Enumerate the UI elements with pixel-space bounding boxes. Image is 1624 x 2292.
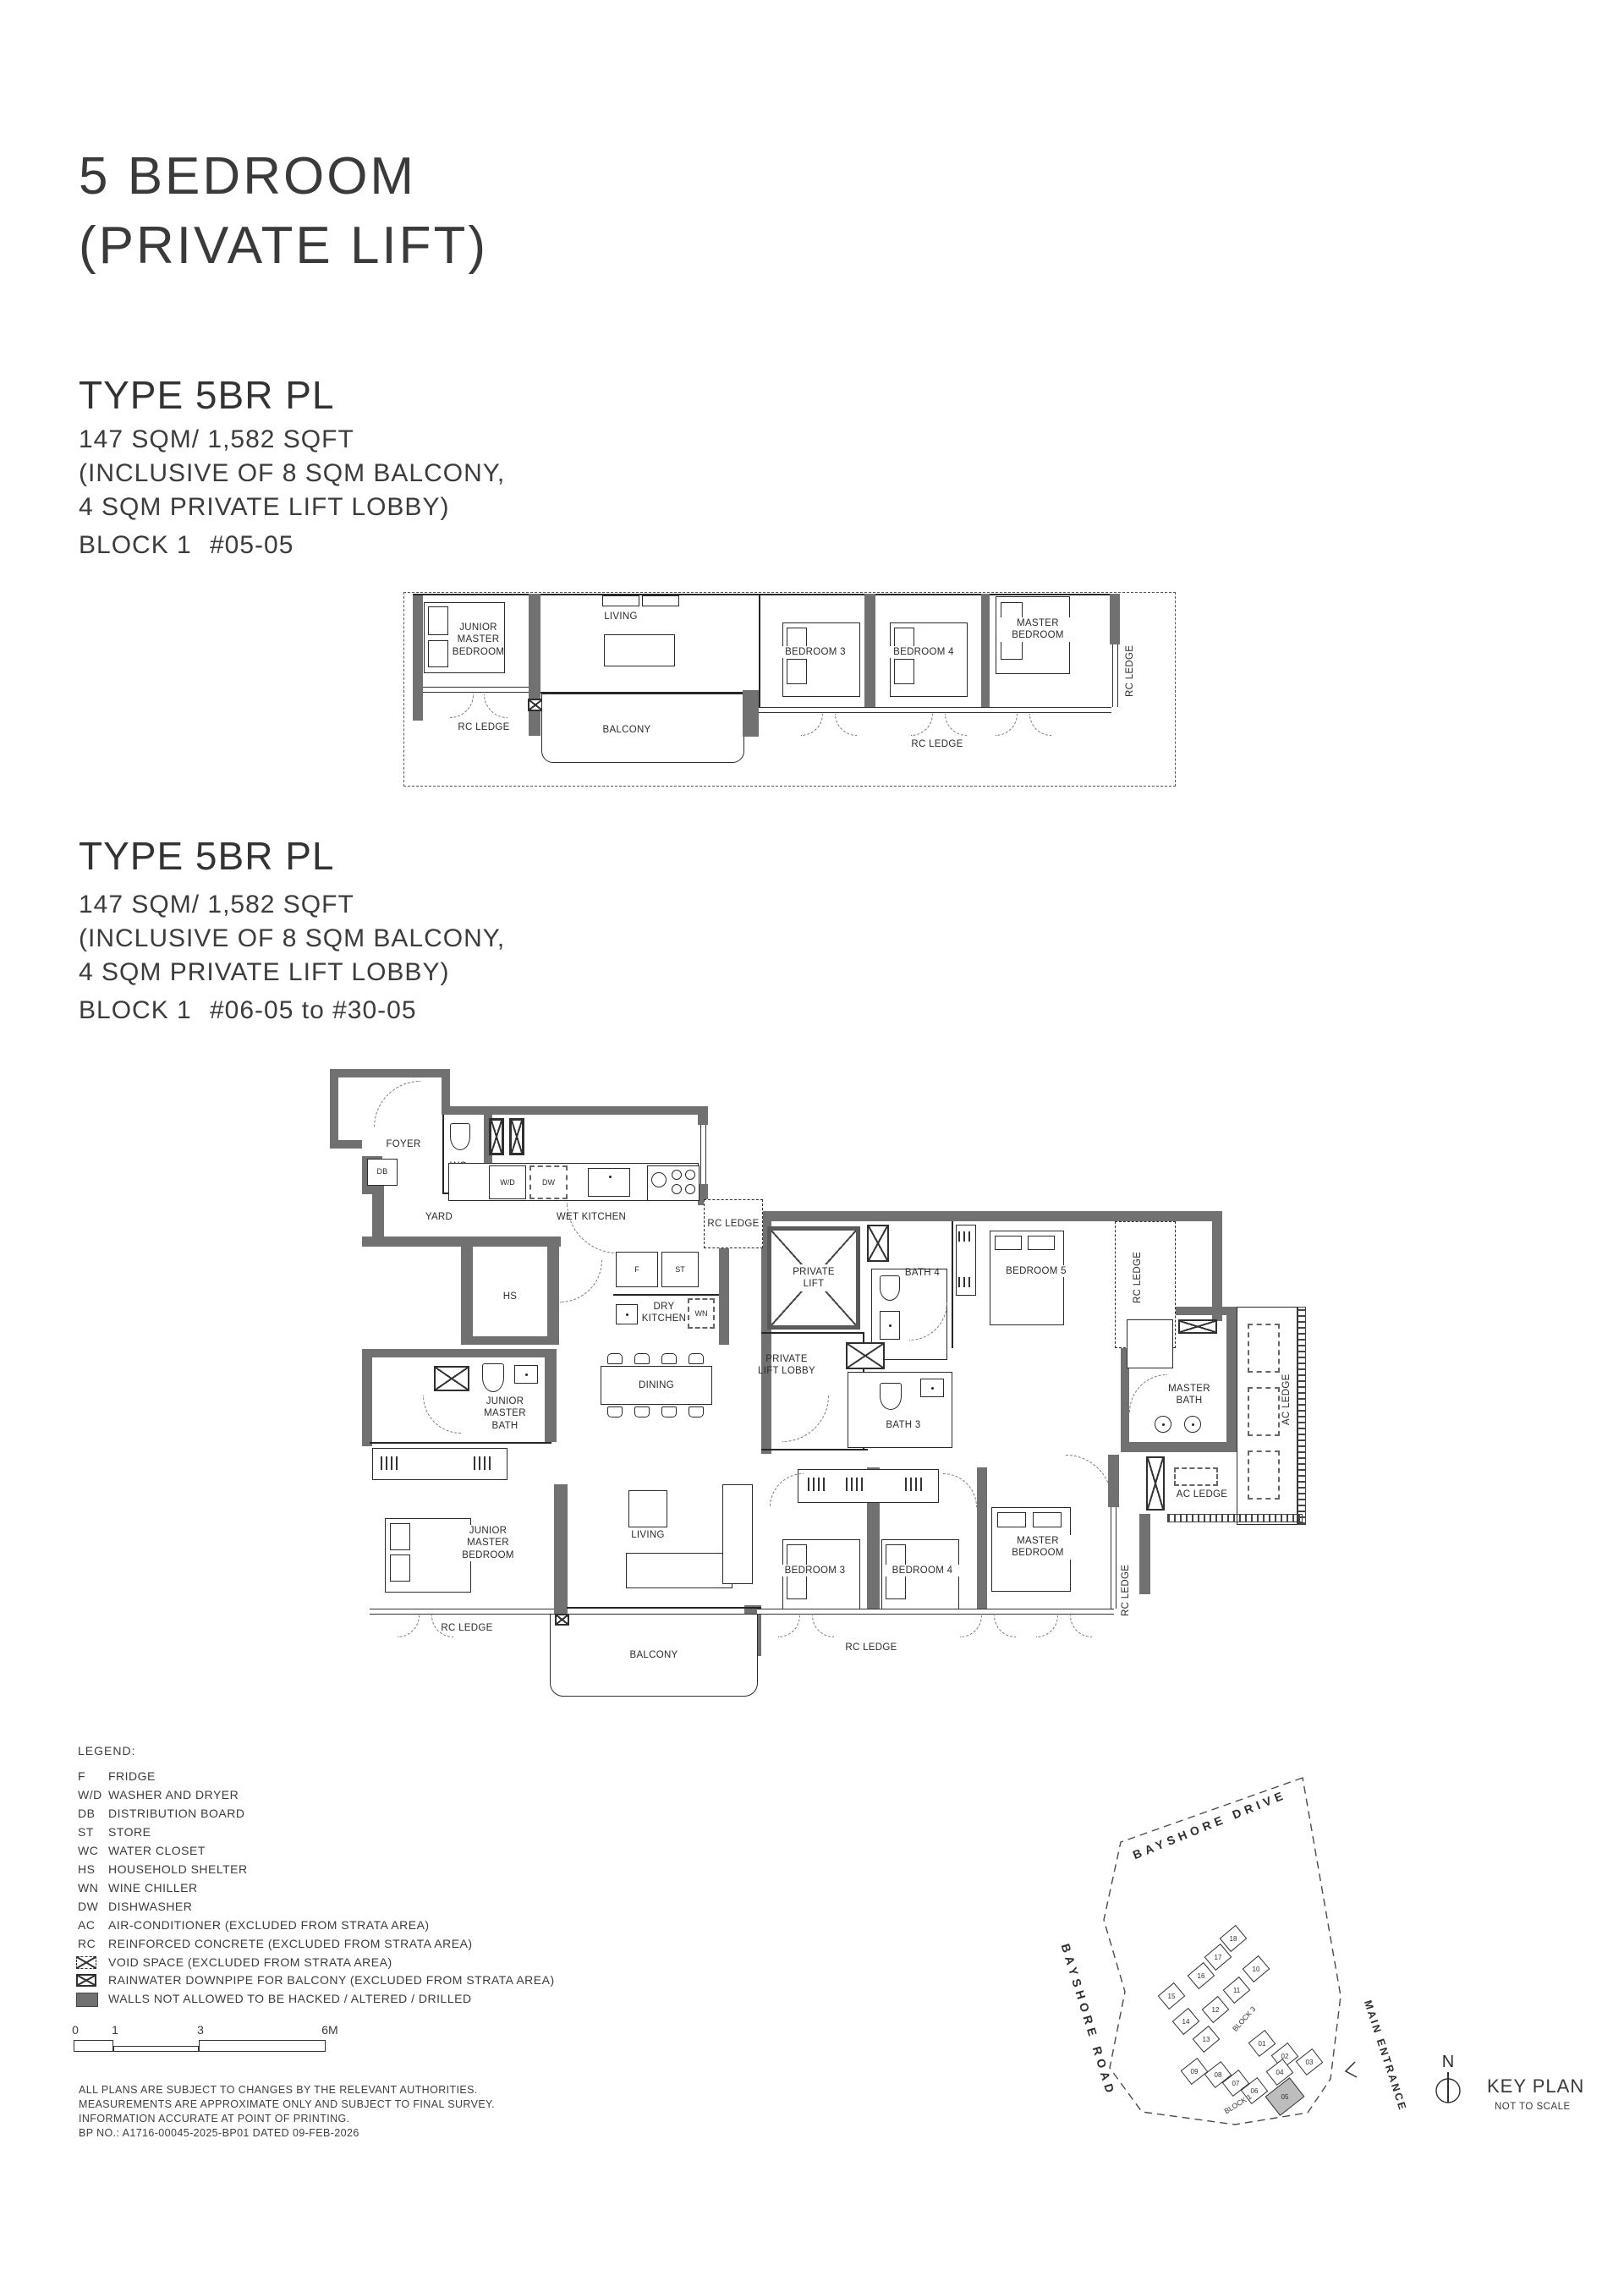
label-st: ST [675, 1265, 685, 1274]
sofa [626, 1553, 732, 1588]
type2-block: BLOCK 1 [79, 996, 192, 1025]
legend-desc: WATER CLOSET [108, 1844, 206, 1857]
kitchen-sink [588, 1168, 630, 1197]
unit-footprint: 12 [1202, 1997, 1228, 2023]
legend-desc: DISHWASHER [108, 1900, 192, 1913]
wall-segment [698, 1106, 708, 1125]
basin-dot [525, 1374, 528, 1376]
wall-line [442, 1115, 444, 1194]
hob-burner [672, 1170, 682, 1180]
pillow [894, 659, 914, 684]
scale-tick-6m: 6M [321, 2023, 337, 2037]
type2-inclusive-2: 4 SQM PRIVATE LIFT LOBBY) [79, 958, 449, 987]
tap-dot [609, 1176, 612, 1178]
road-label-bayshore-road: BAYSHORE ROAD [1059, 1942, 1118, 2098]
glass-line [567, 1607, 761, 1609]
scale-tick-0: 0 [72, 2023, 79, 2037]
bed-bedroom5 [990, 1231, 1064, 1325]
wall-segment [554, 1484, 568, 1624]
wall-line [761, 1332, 864, 1334]
legend-desc: AIR-CONDITIONER (EXCLUDED FROM STRATA AR… [108, 1918, 430, 1932]
wall-segment [529, 594, 540, 736]
ledge-label-rc-bottom-mid: RC LEDGE [829, 1642, 913, 1653]
unit-footprint: 16 [1188, 1963, 1214, 1989]
dining-table: DINING [601, 1366, 712, 1405]
room-label-yard: YARD [408, 1211, 470, 1223]
lift-void-icon [489, 1118, 504, 1155]
unit-footprint: 15 [1158, 1983, 1184, 2010]
legend-abbr: WN [78, 1881, 98, 1894]
wall-segment [362, 1349, 557, 1357]
disclaimer-line: BP NO.: A1716-00045-2025-BP01 DATED 09-F… [79, 2127, 359, 2139]
wall-segment [1226, 1307, 1237, 1452]
chair [634, 1353, 650, 1364]
scale-segment [199, 2040, 326, 2052]
room-label-junior-master-bath: JUNIOR MASTER BATH [467, 1395, 543, 1432]
lift-void-icon [509, 1118, 524, 1155]
type1-inclusive-1: (INCLUSIVE OF 8 SQM BALCONY, [79, 459, 505, 488]
ledge-label-rc-right: RC LEDGE [1132, 1231, 1145, 1324]
room-label-foyer: FOYER [370, 1138, 437, 1150]
counter-line [613, 1294, 719, 1296]
hob-burner [672, 1184, 682, 1194]
block3-cluster: 18 17 16 10 11 15 12 14 13 BLOCK 3 [1158, 1926, 1269, 2053]
legend-desc: HOUSEHOLD SHELTER [108, 1862, 248, 1876]
unit-number: 12 [1212, 2006, 1220, 2014]
room-label-dining: DINING [639, 1379, 674, 1391]
dishwasher-box: DW [529, 1165, 568, 1199]
chair [689, 1353, 704, 1364]
room-label-bedroom3: BEDROOM 3 [777, 646, 853, 658]
toilet [880, 1383, 902, 1410]
keyplan-title: KEY PLAN [1487, 2075, 1584, 2097]
door-arc [423, 1395, 461, 1434]
scale-segment [113, 2046, 199, 2052]
scale-tick-1: 1 [112, 2023, 118, 2037]
legend-desc: WALLS NOT ALLOWED TO BE HACKED / ALTERED… [108, 1992, 472, 2005]
type1-area: 147 SQM/ 1,582 SQFT [79, 425, 354, 454]
room-label-living: LIVING [583, 611, 659, 622]
label-wn: WN [695, 1309, 708, 1318]
door-arc [1066, 1455, 1112, 1501]
legend-abbr: F [78, 1769, 85, 1783]
wall-segment [461, 1336, 559, 1345]
legend-desc: WASHER AND DRYER [108, 1788, 239, 1801]
door-arc [560, 1260, 602, 1302]
unit-number: 16 [1198, 1972, 1205, 1980]
unit-number: 10 [1253, 1966, 1260, 1973]
chair [607, 1406, 623, 1417]
room-label-bedroom5: BEDROOM 5 [994, 1265, 1078, 1277]
hanger-ticks [808, 1478, 828, 1491]
wall-swatch-icon [76, 1993, 98, 2007]
wall-segment [719, 1245, 729, 1345]
hanger-ticks [905, 1478, 925, 1491]
ledge-label-rc-top: RC LEDGE [704, 1218, 763, 1230]
shower [1127, 1319, 1173, 1368]
basin-dot [1162, 1423, 1165, 1426]
wall-line [952, 1221, 953, 1348]
cabinet [602, 595, 639, 606]
unit-footprint: 09 [1181, 2059, 1207, 2085]
legend-abbr: HS [78, 1862, 95, 1876]
type1-heading: TYPE 5BR PL [79, 372, 334, 418]
room-label-private-lift-lobby: PRIVATE LIFT LOBBY [740, 1353, 833, 1378]
basin-dot [1192, 1423, 1194, 1426]
unit-number: 01 [1259, 2040, 1266, 2048]
door-arc [1129, 1374, 1167, 1412]
chair [689, 1406, 704, 1417]
label-db: DB [367, 1167, 398, 1176]
wall-segment [362, 1236, 561, 1247]
cabinet [642, 595, 679, 606]
unit-number: 17 [1215, 1954, 1222, 1961]
type2-unit: #06-05 to #30-05 [210, 996, 417, 1025]
scale-tick-3: 3 [197, 2023, 204, 2037]
chair [661, 1353, 677, 1364]
wall-segment [1212, 1211, 1222, 1321]
wall-line [370, 1442, 551, 1444]
basin [514, 1365, 538, 1384]
private-lift: PRIVATE LIFT [767, 1226, 860, 1330]
label-dw: DW [542, 1178, 555, 1187]
void-space-icon [867, 1225, 889, 1262]
room-label-master-bedroom: MASTER BEDROOM [1000, 1535, 1076, 1560]
wall-segment [461, 1247, 473, 1341]
hanger-ticks [381, 1456, 401, 1470]
basin [920, 1379, 944, 1397]
room-label-master-bedroom: MASTER BEDROOM [1000, 617, 1076, 642]
pillow [390, 1523, 410, 1550]
wall-segment [743, 690, 759, 737]
keyplan-subtitle: NOT TO SCALE [1495, 2102, 1571, 2112]
washer-dryer-box: W/D [489, 1165, 526, 1199]
door-arc [994, 1615, 1016, 1637]
store-box: ST [661, 1252, 699, 1287]
type2-inclusive-1: (INCLUSIVE OF 8 SQM BALCONY, [79, 924, 505, 953]
wall-segment [413, 594, 423, 721]
wall-segment [977, 1467, 987, 1613]
basin-dot [889, 1324, 892, 1327]
ledge-label-rc-bottom: RC LEDGE [895, 738, 979, 750]
pillow [1033, 1512, 1062, 1527]
chair [661, 1406, 677, 1417]
entrance-arrow-icon [1346, 2062, 1357, 2077]
unit-number: 11 [1233, 1987, 1241, 1994]
door-arc [782, 1395, 829, 1442]
floor-plan-unit-06-05-to-30-05: FOYER DB WC YARD W/D DW WET KITCHEN RC L… [321, 1057, 1328, 1734]
legend-desc: FRIDGE [108, 1769, 156, 1783]
wall-segment [1121, 1442, 1235, 1452]
unit-footprint: 01 [1248, 2031, 1275, 2057]
ledge-label-rc-right: RC LEDGE [1124, 631, 1138, 711]
pillow [997, 1512, 1026, 1527]
wall-line [761, 1449, 868, 1450]
room-label-bath4: BATH 4 [886, 1267, 958, 1279]
pillow [787, 659, 807, 684]
page-title-line1: 5 BEDROOM [79, 142, 488, 211]
legend-abbr: DW [78, 1900, 98, 1913]
toilet [880, 1275, 900, 1301]
void-space-icon [846, 1342, 885, 1369]
wall-segment [330, 1069, 444, 1077]
wall-segment [545, 1349, 557, 1442]
void-space-icon [1178, 1319, 1217, 1334]
wall-segment [330, 1140, 362, 1149]
toilet [450, 1123, 470, 1150]
room-label-bedroom4: BEDROOM 4 [882, 1565, 963, 1576]
room-label-bath3: BATH 3 [870, 1419, 937, 1431]
room-label-bedroom3: BEDROOM 3 [775, 1565, 855, 1576]
wall-line [413, 594, 1120, 595]
unit-number: 03 [1306, 2059, 1314, 2066]
rainwater-downpipe-icon [76, 1974, 96, 1987]
sofa [604, 634, 675, 666]
legend-abbr: DB [78, 1807, 95, 1820]
pillow [995, 1236, 1022, 1250]
hob-burner [651, 1172, 667, 1187]
unit-number: 15 [1168, 1993, 1176, 2000]
unit-number: 07 [1232, 2080, 1240, 2087]
tap-dot [626, 1313, 628, 1316]
unit-footprint: 14 [1172, 2009, 1199, 2035]
unit-number: 13 [1203, 2036, 1210, 2043]
door-arc [943, 1473, 977, 1507]
window-band [757, 1609, 1114, 1615]
room-label-junior-master-bedroom: JUNIOR MASTER BEDROOM [450, 1525, 526, 1561]
door-arc [374, 1081, 420, 1127]
scale-segment [74, 2040, 113, 2052]
window-band [1112, 644, 1118, 707]
wall-segment [761, 1211, 1222, 1221]
road-label-bayshore-drive: BAYSHORE DRIVE [1131, 1787, 1289, 1862]
void-space-icon [434, 1366, 469, 1391]
door-arc [567, 1203, 617, 1253]
room-label-hs: HS [491, 1291, 529, 1302]
sofa [722, 1484, 753, 1584]
wall-segment [362, 1349, 372, 1446]
north-label: N [1442, 2053, 1454, 2071]
ledge-label-rc-left: RC LEDGE [442, 721, 526, 733]
pillow [886, 1574, 906, 1599]
legend-desc: DISTRIBUTION BOARD [108, 1807, 244, 1820]
legend-abbr: RC [78, 1937, 96, 1950]
type2-heading: TYPE 5BR PL [79, 833, 334, 879]
unit-number: 06 [1251, 2087, 1259, 2095]
legend-desc: WINE CHILLER [108, 1881, 198, 1894]
wall-segment [1110, 594, 1120, 644]
ac-unit-dashed [1248, 1387, 1280, 1436]
label-f: F [634, 1265, 639, 1274]
void-space-icon [1146, 1456, 1165, 1511]
ledge-label-ac-right: AC LEDGE [1281, 1362, 1294, 1438]
legend-desc: STORE [108, 1825, 151, 1839]
ledge-label-rc-bottom-left: RC LEDGE [425, 1622, 509, 1634]
wall-line [759, 594, 760, 712]
unit-number: 04 [1276, 2069, 1284, 2076]
floorplan-page: 5 BEDROOM (PRIVATE LIFT) TYPE 5BR PL 147… [0, 0, 1624, 2292]
legend-title: LEGEND: [78, 1744, 135, 1757]
unit-footprint: 17 [1204, 1944, 1231, 1971]
pillow [390, 1555, 410, 1582]
door-arc [812, 1615, 834, 1637]
hanger-ticks [846, 1478, 866, 1491]
wall-segment [1139, 1514, 1150, 1594]
coffee-table [628, 1490, 667, 1527]
disclaimer-line: MEASUREMENTS ARE APPROXIMATE ONLY AND SU… [79, 2098, 495, 2110]
chair [607, 1353, 623, 1364]
legend-desc: VOID SPACE (EXCLUDED FROM STRATA AREA) [108, 1955, 392, 1969]
toilet [482, 1363, 504, 1392]
legend-abbr: ST [78, 1825, 94, 1839]
legend-desc: RAINWATER DOWNPIPE FOR BALCONY (EXCLUDED… [108, 1973, 555, 1987]
type1-block: BLOCK 1 [79, 531, 192, 560]
legend-abbr: AC [78, 1918, 95, 1932]
hanger-ticks [958, 1277, 974, 1287]
window-band [700, 1125, 706, 1184]
hanger-ticks [474, 1456, 494, 1470]
label-wd: W/D [500, 1178, 515, 1187]
ledge-label-rc-bottom-right: RC LEDGE [1120, 1544, 1133, 1637]
page-title: 5 BEDROOM (PRIVATE LIFT) [79, 142, 488, 281]
door-arc [1070, 1615, 1092, 1637]
ac-unit-dashed [1174, 1467, 1218, 1486]
hob-burner [685, 1170, 695, 1180]
unit-footprint: 18 [1220, 1926, 1246, 1952]
disclaimer-line: ALL PLANS ARE SUBJECT TO CHANGES BY THE … [79, 2084, 478, 2096]
ledge-label-ac-bottom: AC LEDGE [1160, 1489, 1244, 1500]
hatch-strip [1298, 1307, 1306, 1525]
door-arc [960, 1615, 982, 1637]
ac-unit-dashed [1248, 1324, 1280, 1373]
wall-segment [442, 1106, 708, 1115]
wall-segment [864, 594, 875, 712]
unit-footprint: 10 [1243, 1956, 1269, 1982]
legend-desc: REINFORCED CONCRETE (EXCLUDED FROM STRAT… [108, 1937, 473, 1950]
window-band [423, 687, 529, 693]
hob-burner [685, 1184, 695, 1194]
north-indicator: N [1436, 2053, 1460, 2103]
unit-footprint-highlighted: 05 [1265, 2078, 1304, 2115]
unit-number: 14 [1182, 2018, 1190, 2026]
wall-segment [981, 594, 990, 712]
bed-bedroom3 [782, 622, 860, 697]
void-space-icon [76, 1956, 96, 1969]
key-plan: BAYSHORE DRIVE BAYSHORE ROAD MAIN ENTRAN… [1040, 1742, 1616, 2131]
unit-footprint: 03 [1296, 2049, 1322, 2075]
unit-footprint: 13 [1193, 2026, 1219, 2053]
block1-label: BLOCK 1 [1223, 2092, 1254, 2116]
unit-number: 09 [1191, 2068, 1199, 2075]
unit-number: 08 [1215, 2071, 1222, 2079]
pillow [1028, 1236, 1055, 1250]
door-arc [398, 1615, 420, 1637]
hatch-strip [1167, 1514, 1303, 1522]
room-label-balcony: BALCONY [589, 724, 665, 736]
pillow [787, 1574, 807, 1599]
door-arc [778, 1615, 800, 1637]
room-label-living: LIVING [610, 1529, 686, 1541]
disclaimer-line: INFORMATION ACCURATE AT POINT OF PRINTIN… [79, 2113, 350, 2125]
room-label-bedroom4: BEDROOM 4 [886, 646, 962, 658]
unit-number: 05 [1281, 2093, 1289, 2101]
room-label-junior-master-bedroom: JUNIOR MASTER BEDROOM [438, 622, 518, 658]
hanger-ticks [958, 1231, 974, 1242]
rainwater-downpipe-icon [555, 1614, 569, 1626]
fridge-box: F [616, 1252, 658, 1287]
unit-number: 18 [1230, 1935, 1237, 1943]
floor-plan-unit-05-05: JUNIOR MASTER BEDROOM RC LEDGE LIVING BA… [403, 582, 1177, 803]
door-arc [1036, 1615, 1058, 1637]
window-band [1111, 1507, 1116, 1609]
road-label-main-entrance: MAIN ENTRANCE [1362, 1999, 1409, 2113]
wall-segment [330, 1069, 338, 1147]
type2-area: 147 SQM/ 1,582 SQFT [79, 891, 354, 919]
legend-abbr: W/D [78, 1788, 102, 1801]
chair [634, 1406, 650, 1417]
type1-inclusive-2: 4 SQM PRIVATE LIFT LOBBY) [79, 493, 449, 522]
window-band [370, 1609, 554, 1615]
unit-footprint: 11 [1223, 1977, 1249, 2004]
ac-unit-dashed [1248, 1450, 1280, 1500]
legend-abbr: WC [78, 1844, 98, 1857]
wall-segment [547, 1247, 559, 1341]
basin-dot [931, 1387, 934, 1390]
page-title-line2: (PRIVATE LIFT) [79, 211, 488, 281]
type1-unit: #05-05 [210, 531, 294, 560]
room-label-balcony: BALCONY [612, 1649, 696, 1661]
bed-bedroom4 [890, 622, 968, 697]
block3-label: BLOCK 3 [1231, 2004, 1258, 2033]
room-label-private-lift: PRIVATE LIFT [789, 1264, 838, 1292]
window-band [759, 707, 1111, 713]
door-arc [770, 1473, 804, 1507]
basin [880, 1311, 900, 1340]
wine-chiller-box: WN [688, 1298, 715, 1329]
